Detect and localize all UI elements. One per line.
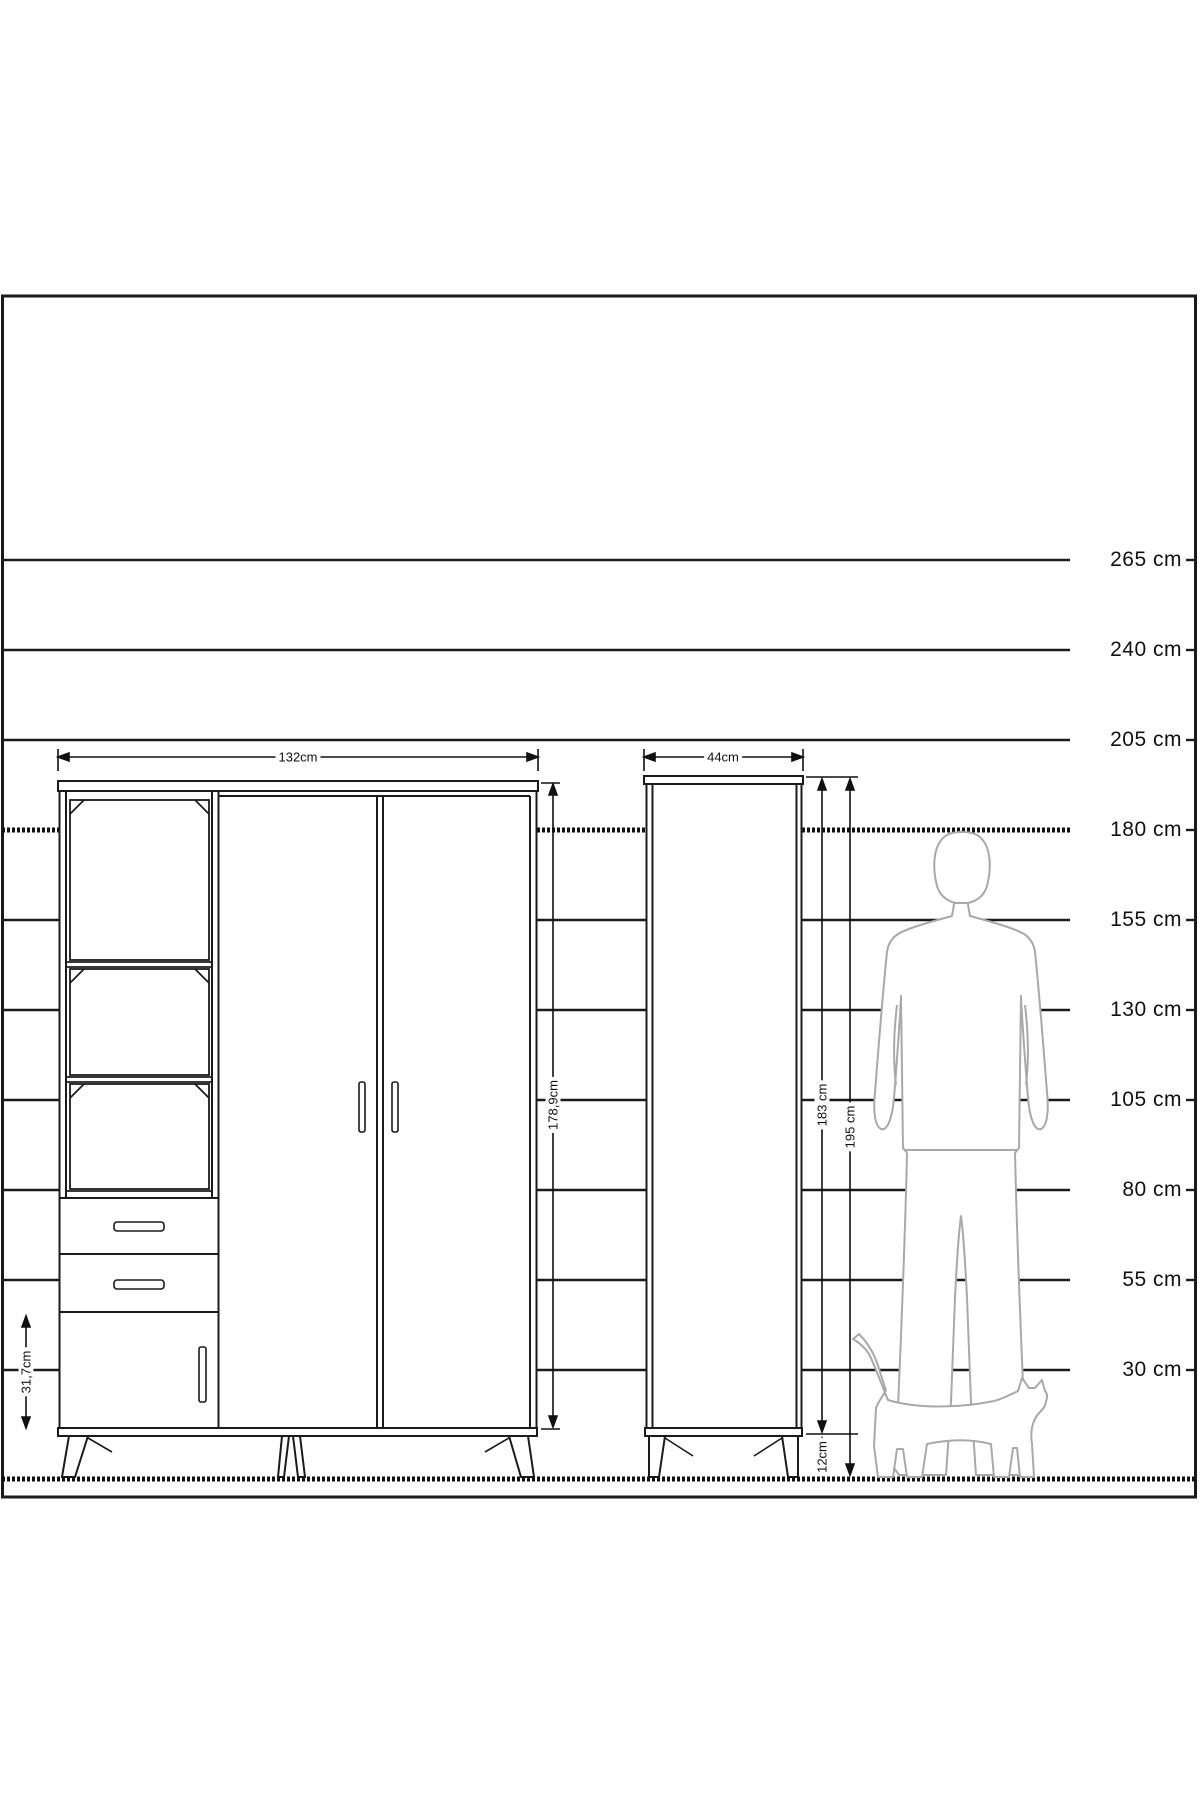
scale-label-265: 265 cm <box>1070 547 1184 573</box>
scale-label-155: 155 cm <box>1070 907 1184 933</box>
scale-label-205: 205 cm <box>1070 727 1184 753</box>
wardrobe-top-board <box>58 781 538 791</box>
human-head <box>934 832 990 903</box>
drawing-canvas <box>0 0 1200 1800</box>
cabinet-body <box>647 784 802 1428</box>
drawer-2-handle <box>114 1280 164 1289</box>
scale-label-80: 80 cm <box>1070 1177 1184 1203</box>
wardrobe-leg-right <box>509 1436 534 1477</box>
scale-label-130: 130 cm <box>1070 997 1184 1023</box>
cabinet-total-height-label: 195 cm <box>843 1103 858 1152</box>
wardrobe-shelf-compartments <box>66 800 212 1191</box>
bottom-door-handle <box>199 1347 206 1402</box>
scale-label-30: 30 cm <box>1070 1357 1184 1383</box>
scale-label-55: 55 cm <box>1070 1267 1184 1293</box>
cabinet-leg-left <box>649 1436 665 1477</box>
wardrobe-right-door-handle <box>392 1082 398 1132</box>
cabinet-top-board <box>644 776 803 784</box>
scale-label-240: 240 cm <box>1070 637 1184 663</box>
scale-label-180: 180 cm <box>1070 817 1184 843</box>
cabinet-width-label: 44cm <box>704 750 742 765</box>
shelf-compartment-1 <box>70 800 209 960</box>
wardrobe-width-label: 132cm <box>275 750 320 765</box>
shelf-compartment-2 <box>70 969 209 1075</box>
wardrobe <box>58 781 538 1477</box>
wardrobe-height-label: 178,9cm <box>546 1077 561 1133</box>
drawer-1-handle <box>114 1222 164 1231</box>
scale-label-105: 105 cm <box>1070 1087 1184 1113</box>
wardrobe-left-door-handle <box>359 1082 365 1132</box>
cabinet-legs <box>649 1436 798 1477</box>
cabinet-body-height-label: 183 cm <box>815 1081 830 1130</box>
wardrobe-leg-left <box>62 1436 88 1477</box>
side-cabinet <box>644 776 803 1477</box>
wardrobe-bottom-board <box>58 1428 537 1436</box>
cabinet-leg-height-label: 12cm <box>815 1438 830 1476</box>
cabinet-leg-right <box>782 1436 798 1477</box>
shelf-compartment-3 <box>70 1084 209 1189</box>
wardrobe-leg-middle-a <box>278 1436 289 1477</box>
wardrobe-door-height-label: 31,7cm <box>19 1348 34 1397</box>
cabinet-bottom-board <box>645 1428 802 1436</box>
furniture-dimension-drawing: 265 cm 240 cm 205 cm 180 cm 155 cm 130 c… <box>0 0 1200 1800</box>
wardrobe-leg-middle-b <box>293 1436 305 1477</box>
wardrobe-legs <box>62 1436 534 1477</box>
